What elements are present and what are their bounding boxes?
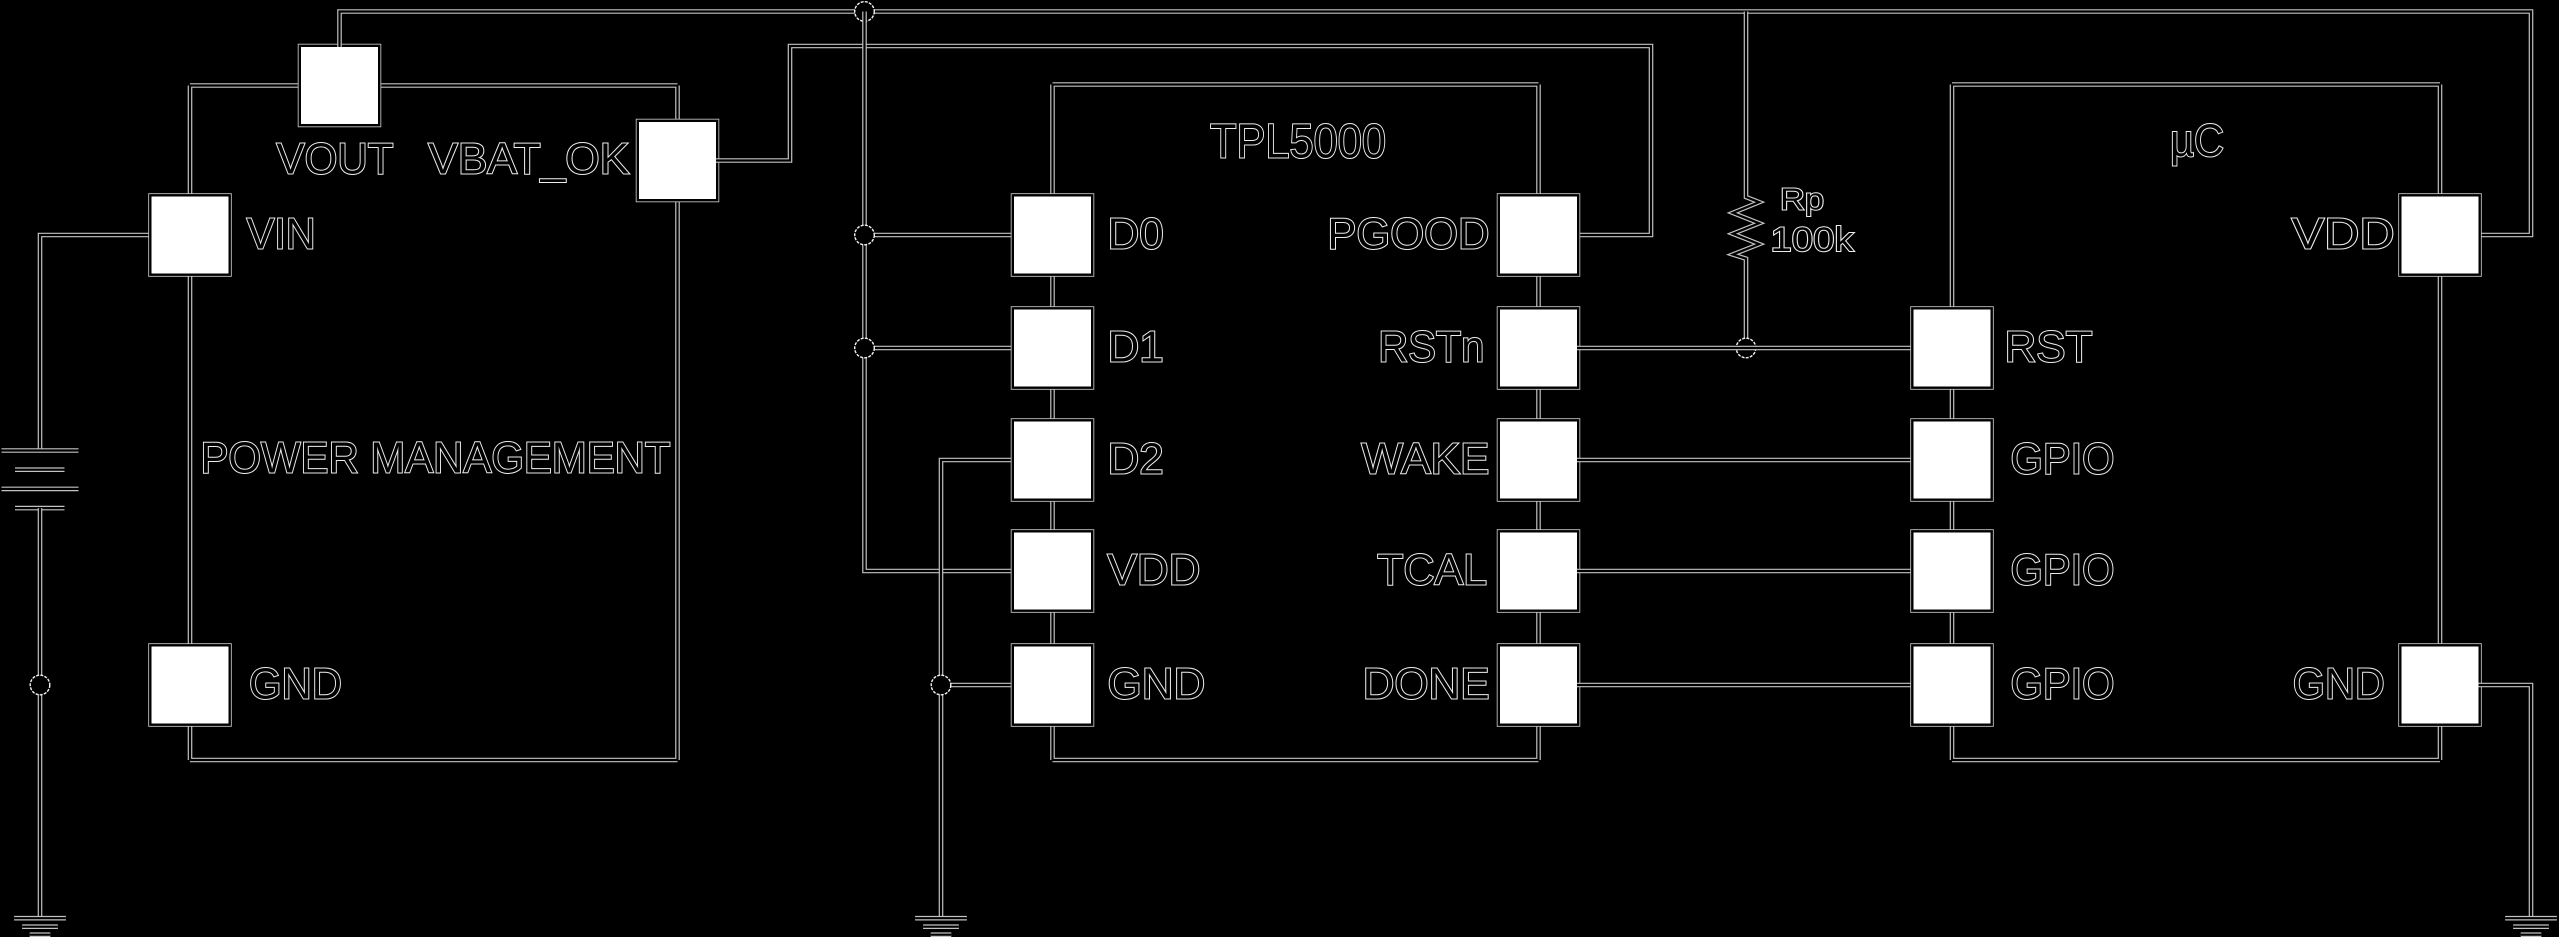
svg-text:D1: D1 — [1108, 322, 1164, 371]
svg-text:VDD: VDD — [2292, 209, 2395, 258]
svg-text:µC: µC — [2170, 115, 2224, 166]
svg-text:RSTn: RSTn — [1378, 322, 1484, 371]
svg-text:WAKE: WAKE — [1361, 434, 1489, 483]
svg-text:100k: 100k — [1771, 221, 1855, 259]
svg-text:POWER MANAGEMENT: POWER MANAGEMENT — [201, 434, 671, 483]
svg-text:VIN: VIN — [247, 209, 316, 258]
svg-text:VOUT: VOUT — [277, 135, 394, 184]
svg-text:GND: GND — [2293, 659, 2385, 708]
svg-text:GPIO: GPIO — [2011, 545, 2115, 594]
svg-text:GPIO: GPIO — [2011, 434, 2115, 483]
svg-text:VDD: VDD — [1108, 545, 1201, 594]
svg-text:DONE: DONE — [1363, 659, 1490, 708]
svg-text:VBAT_OK: VBAT_OK — [428, 135, 629, 184]
svg-text:GND: GND — [1108, 659, 1206, 708]
svg-text:GND: GND — [249, 659, 342, 708]
svg-text:TPL5000: TPL5000 — [1210, 115, 1386, 168]
svg-text:GPIO: GPIO — [2011, 659, 2115, 708]
svg-text:PGOOD: PGOOD — [1327, 209, 1489, 258]
svg-text:Rp: Rp — [1780, 182, 1824, 217]
svg-text:D0: D0 — [1108, 209, 1164, 258]
svg-text:D2: D2 — [1108, 434, 1164, 483]
svg-text:TCAL: TCAL — [1377, 545, 1487, 594]
svg-text:RST: RST — [2005, 322, 2093, 371]
